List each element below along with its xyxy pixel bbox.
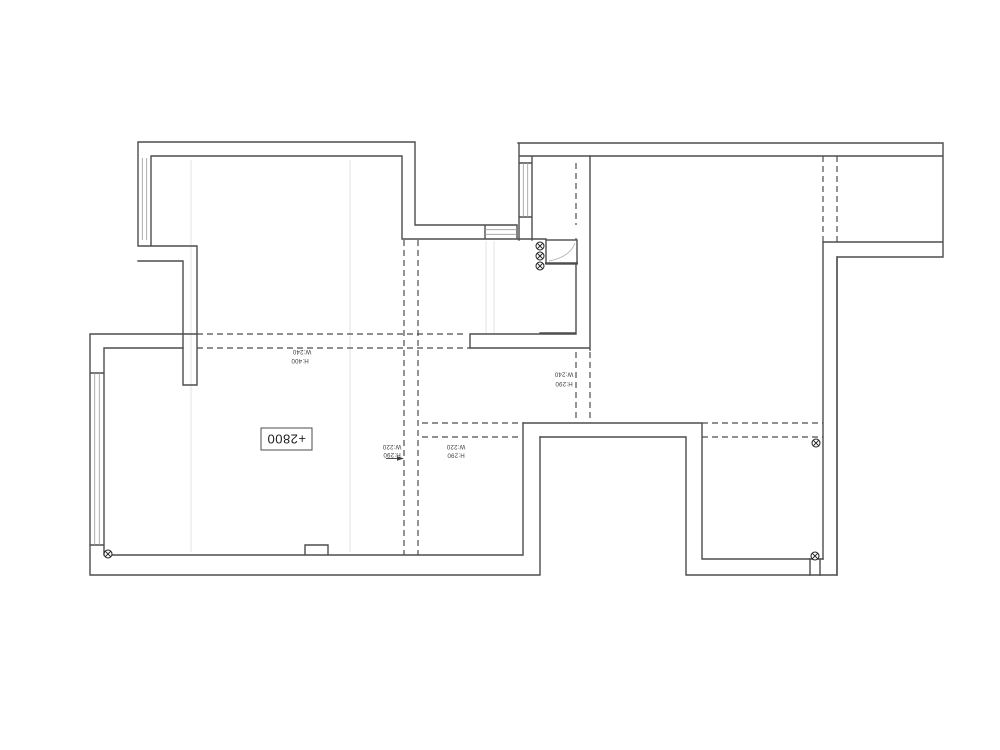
- beam-top-left-horizontal: [197, 334, 470, 348]
- beam-size-label: W:220: [446, 443, 465, 450]
- grid-reference-lines: [191, 160, 494, 552]
- floor-plan-canvas: +2800 W:240 H:400 W:240 H:290 W:220 H:29…: [0, 0, 1000, 750]
- drain-symbol-icon: [536, 262, 544, 270]
- drain-symbol-icon: [104, 550, 112, 558]
- beam-size-label: W:220: [382, 443, 401, 450]
- corridor-and-bottom-right-walls: [523, 257, 837, 575]
- wall-lines: [90, 142, 943, 575]
- drain-symbol-icon: [536, 242, 544, 250]
- drain-symbols: [104, 242, 820, 560]
- grid-line: [191, 160, 494, 552]
- bottom-left-room-walls: [90, 334, 540, 575]
- beam-size-label: W:240: [292, 348, 311, 355]
- beam-size-label: H:400: [291, 357, 309, 364]
- beam-size-label: W:240: [554, 371, 573, 378]
- drain-symbol-icon: [811, 552, 819, 560]
- floor-plan-page: +2800 W:240 H:400 W:240 H:290 W:220 H:29…: [0, 0, 1000, 750]
- drain-symbol-icon: [536, 252, 544, 260]
- beam-corridor-horizontal: [422, 423, 522, 437]
- ceiling-height-label: +2800: [267, 432, 306, 447]
- beam-bottom-right-horizontal: [702, 423, 823, 437]
- beam-mid-vertical: [576, 163, 590, 421]
- drain-symbol-icon: [812, 439, 820, 447]
- beam-size-label: H:290: [447, 452, 465, 459]
- ceiling-height-tag: +2800: [261, 428, 312, 450]
- beam-size-labels: W:240 H:400 W:240 H:290 W:220 H:290 W:22…: [291, 348, 574, 459]
- beam-left-vertical: [404, 240, 418, 555]
- beam-size-label: H:290: [555, 380, 573, 387]
- top-right-walls: [518, 143, 943, 575]
- pipe-chase: [810, 559, 820, 575]
- beam-top-right-vertical: [823, 156, 837, 242]
